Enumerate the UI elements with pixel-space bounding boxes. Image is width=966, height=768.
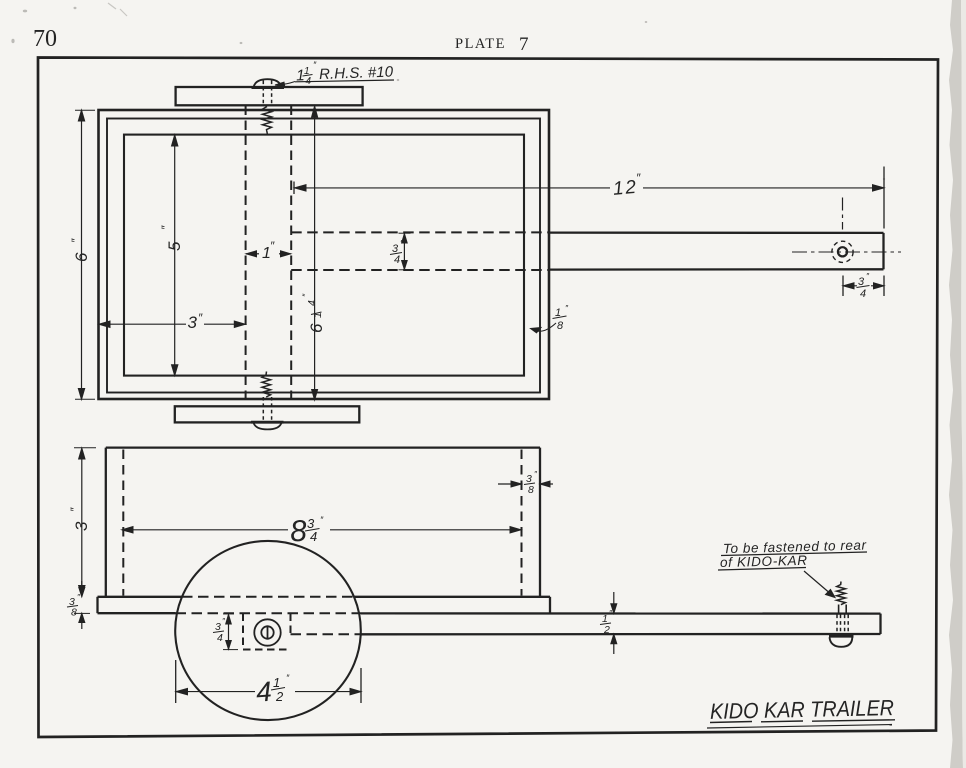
svg-text:4: 4 bbox=[310, 529, 317, 544]
svg-text:4: 4 bbox=[217, 632, 223, 644]
svg-text:7: 7 bbox=[519, 34, 529, 55]
svg-text:PLATE: PLATE bbox=[455, 36, 506, 52]
svg-text:4: 4 bbox=[306, 300, 318, 306]
svg-text:2: 2 bbox=[275, 689, 284, 704]
svg-text:6: 6 bbox=[307, 323, 326, 333]
svg-text:KIDO KAR TRAILER: KIDO KAR TRAILER bbox=[710, 695, 895, 724]
svg-text:70: 70 bbox=[33, 26, 57, 52]
svg-text:4: 4 bbox=[860, 288, 866, 300]
svg-text:6: 6 bbox=[72, 252, 91, 262]
svg-text:8: 8 bbox=[528, 484, 534, 496]
svg-text:3: 3 bbox=[188, 313, 198, 332]
svg-text:2: 2 bbox=[603, 624, 610, 636]
svg-text:4: 4 bbox=[394, 254, 400, 266]
svg-text:3: 3 bbox=[72, 521, 91, 531]
svg-text:1: 1 bbox=[273, 675, 280, 690]
svg-text:4: 4 bbox=[255, 676, 273, 708]
svg-text:8: 8 bbox=[71, 607, 77, 619]
svg-text:5: 5 bbox=[165, 241, 184, 251]
svg-text:8: 8 bbox=[557, 320, 564, 332]
svg-text:8: 8 bbox=[289, 515, 308, 549]
